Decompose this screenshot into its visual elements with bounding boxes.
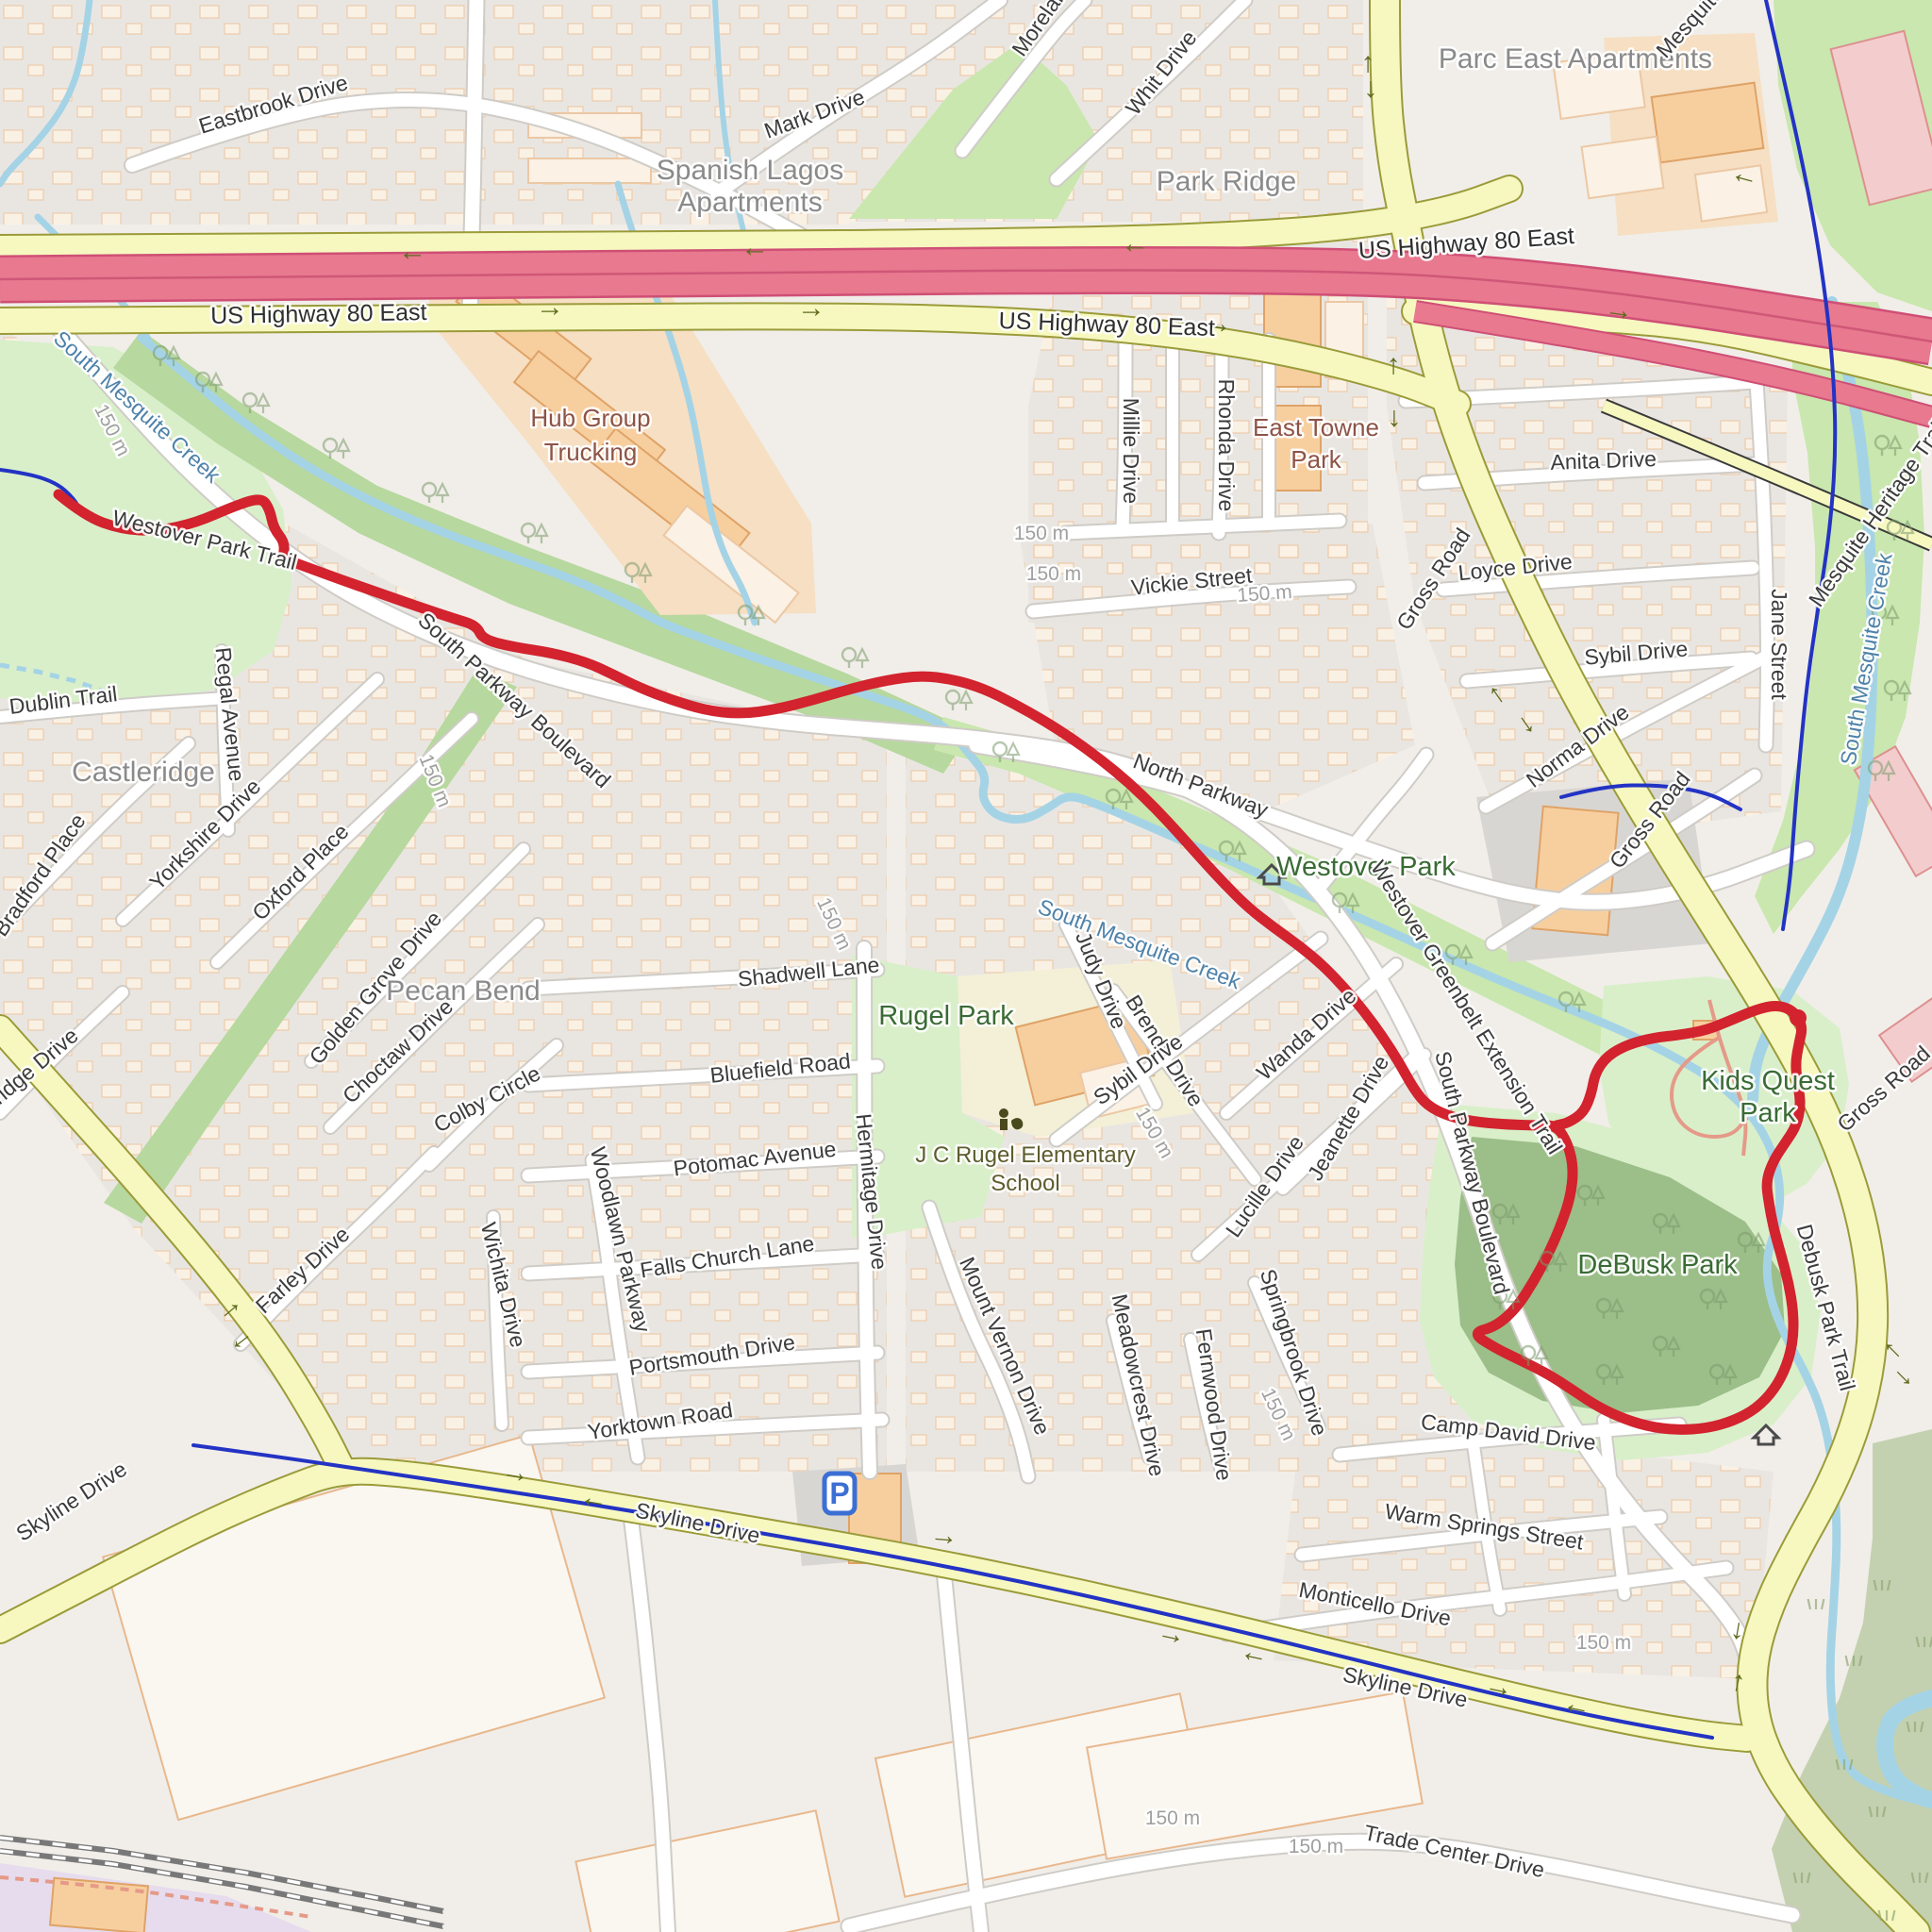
dist-label: 150 m (1237, 581, 1293, 607)
oneway-arrow-icon: → (741, 241, 769, 272)
poi-label: Park (1291, 445, 1341, 474)
parking-icon: P (824, 1474, 855, 1513)
street-label: Rhonda Drive (1214, 379, 1239, 512)
park-label: Kids Quest (1701, 1066, 1835, 1096)
place-label: Castleridge (72, 757, 215, 788)
building (1582, 137, 1664, 199)
building (50, 1878, 148, 1932)
oneway-arrow-icon: → (1383, 405, 1414, 433)
oneway-arrow-icon: → (1348, 50, 1379, 78)
oneway-arrow-icon: → (1121, 237, 1149, 268)
park-label: Westover Park (1276, 852, 1456, 882)
poi-label: East Towne (1253, 413, 1379, 441)
oneway-arrow-icon: → (1724, 1615, 1760, 1648)
poi-label: Hub Group (530, 404, 650, 432)
oneway-arrow-icon: → (1374, 352, 1405, 380)
oneway-arrow-icon: → (499, 1455, 532, 1491)
oneway-arrow-icon: → (1603, 292, 1635, 327)
park-label: DeBusk Park (1577, 1250, 1738, 1280)
oneway-arrow-icon: → (928, 1519, 959, 1552)
oneway-arrow-icon: → (1359, 75, 1391, 104)
map-canvas[interactable]: →→→→→→→→→→→→→→→→→→→→→→→→→→→→PEastbrook D… (0, 0, 1932, 1932)
park-label: Rugel Park (878, 1001, 1014, 1031)
street-label: Millie Drive (1119, 398, 1143, 504)
trail-map[interactable]: →→→→→→→→→→→→→→→→→→→→→→→→→→→→PEastbrook D… (0, 0, 1932, 1932)
dist-label: 150 m (1576, 1632, 1631, 1654)
svg-text:P: P (829, 1476, 849, 1510)
street-label: Anita Drive (1550, 446, 1657, 475)
place-label: Pecan Bend (386, 975, 540, 1007)
dist-label: 150 m (1026, 563, 1081, 585)
oneway-arrow-icon: → (576, 1490, 609, 1525)
route-end-marker (1790, 1009, 1807, 1026)
dist-label: 150 m (1145, 1807, 1200, 1829)
poi-label: Trucking (544, 438, 638, 466)
oneway-arrow-icon: → (536, 291, 564, 323)
park-label: Park (1740, 1098, 1796, 1128)
place-label: Park Ridge (1157, 166, 1296, 197)
dist-label: 150 m (1289, 1836, 1343, 1857)
hwy-label: US Highway 80 East (210, 299, 427, 329)
place-label: Apartments (677, 187, 822, 218)
school-label: School (991, 1171, 1059, 1196)
school-label: J C Rugel Elementary (915, 1142, 1135, 1168)
building (528, 158, 651, 183)
street-label: Jane Street (1767, 589, 1791, 700)
building (1652, 83, 1764, 163)
place-label: Spanish Lagos (657, 155, 844, 186)
oneway-arrow-icon: → (398, 244, 426, 275)
oneway-arrow-icon: → (797, 292, 825, 324)
dist-label: 150 m (1014, 523, 1069, 544)
